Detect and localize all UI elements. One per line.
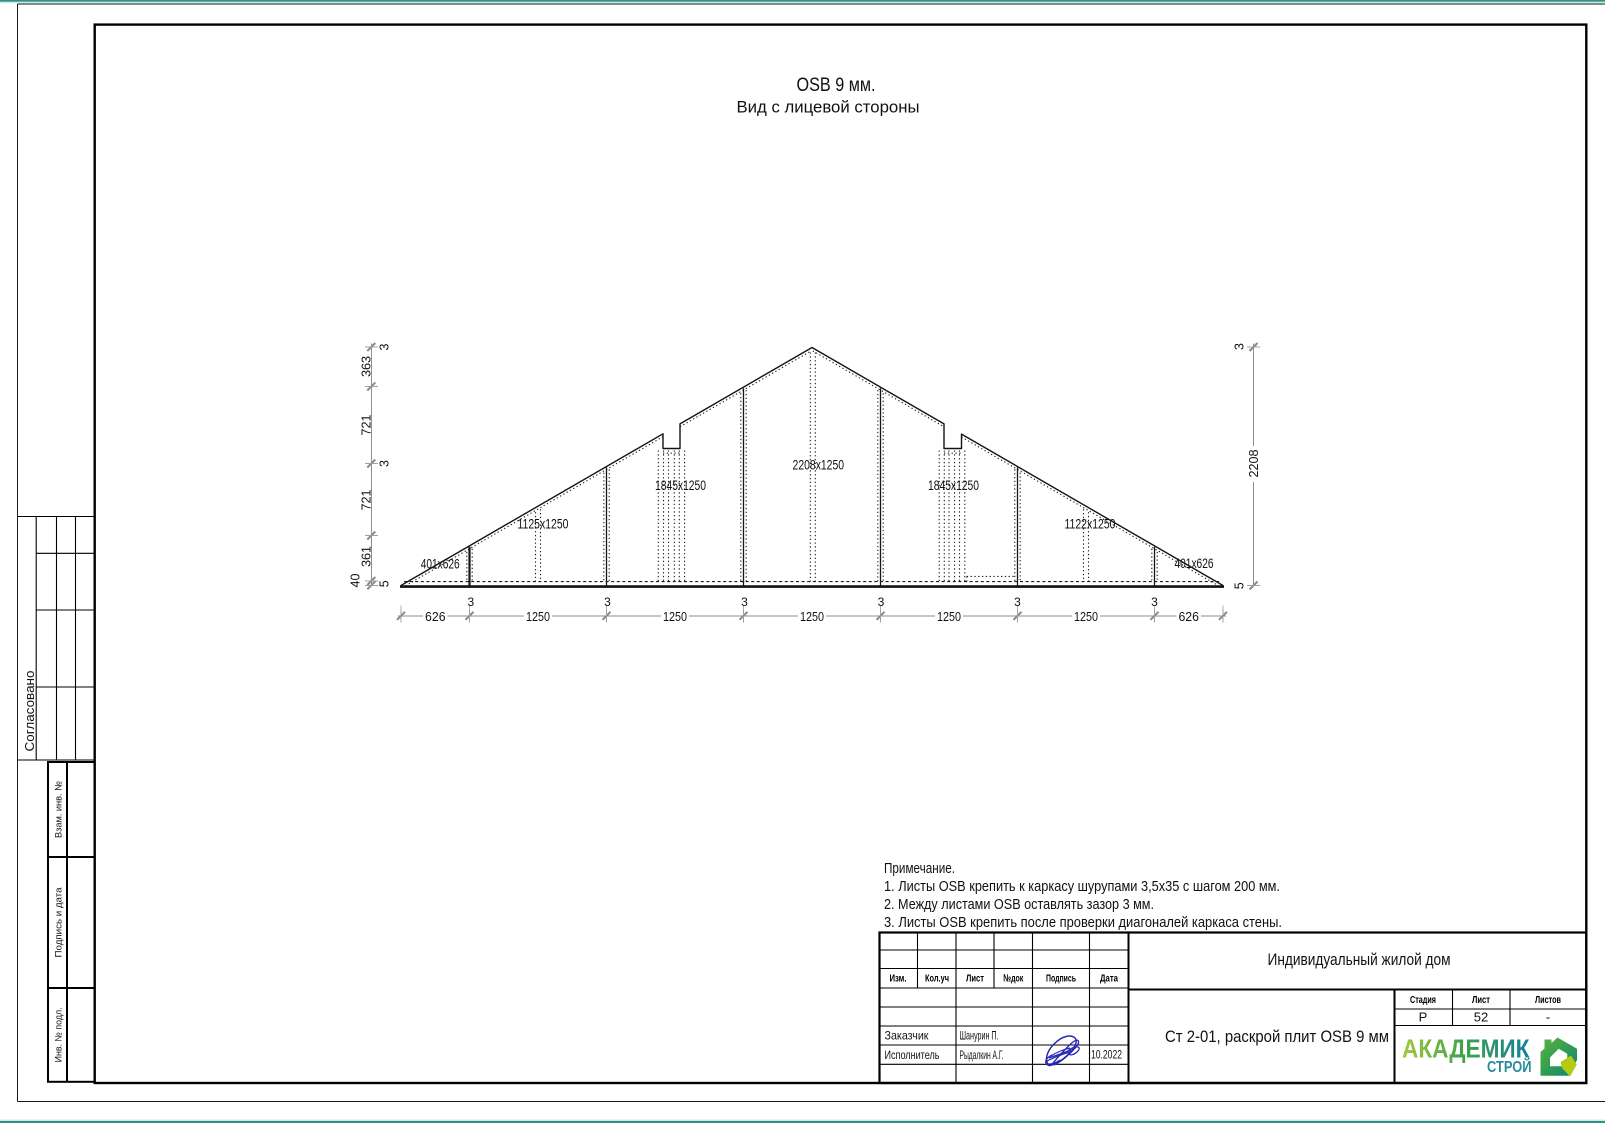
svg-text:Рыдалкин А.Г.: Рыдалкин А.Г. bbox=[960, 1048, 1004, 1062]
svg-text:1845x1250: 1845x1250 bbox=[655, 477, 706, 493]
svg-text:3: 3 bbox=[1233, 343, 1247, 350]
svg-text:1845x1250: 1845x1250 bbox=[928, 477, 979, 493]
svg-text:1125x1250: 1125x1250 bbox=[518, 516, 569, 532]
svg-text:Исполнитель: Исполнитель bbox=[885, 1048, 940, 1062]
svg-text:Листов: Листов bbox=[1535, 994, 1561, 1006]
svg-text:363: 363 bbox=[360, 356, 374, 377]
svg-text:Примечание.: Примечание. bbox=[884, 860, 955, 877]
svg-text:-: - bbox=[1546, 1010, 1550, 1025]
svg-text:626: 626 bbox=[1178, 609, 1199, 624]
svg-text:3: 3 bbox=[1014, 595, 1021, 609]
svg-text:401x626: 401x626 bbox=[421, 556, 460, 572]
svg-text:52: 52 bbox=[1474, 1010, 1488, 1025]
svg-text:Инв. № подл.: Инв. № подл. bbox=[54, 1007, 65, 1062]
svg-text:721: 721 bbox=[360, 489, 374, 510]
svg-text:721: 721 bbox=[360, 414, 374, 435]
svg-text:Дата: Дата bbox=[1100, 973, 1118, 985]
svg-text:3: 3 bbox=[1151, 595, 1158, 609]
svg-text:2208: 2208 bbox=[1246, 450, 1261, 478]
svg-text:401x626: 401x626 bbox=[1175, 555, 1214, 571]
svg-text:3. Листы OSB крепить после про: 3. Листы OSB крепить после проверки диаг… bbox=[884, 914, 1282, 931]
svg-text:1250: 1250 bbox=[937, 609, 961, 624]
svg-text:Р: Р bbox=[1419, 1010, 1428, 1025]
svg-text:5: 5 bbox=[1233, 582, 1247, 589]
svg-text:1250: 1250 bbox=[1074, 609, 1098, 624]
svg-text:Стадия: Стадия bbox=[1410, 994, 1436, 1006]
svg-text:Лист: Лист bbox=[1472, 994, 1490, 1006]
svg-text:3: 3 bbox=[741, 595, 748, 609]
svg-text:3: 3 bbox=[604, 595, 611, 609]
svg-text:Заказчик: Заказчик bbox=[885, 1029, 930, 1043]
svg-text:OSB 9 мм.: OSB 9 мм. bbox=[797, 75, 876, 96]
svg-text:1. Листы OSB крепить к каркасу: 1. Листы OSB крепить к каркасу шурупами … bbox=[884, 878, 1280, 895]
svg-text:СТРОЙ: СТРОЙ bbox=[1487, 1057, 1532, 1076]
svg-text:361: 361 bbox=[360, 546, 374, 567]
svg-text:Взам. инв. №: Взам. инв. № bbox=[54, 781, 65, 838]
svg-text:3: 3 bbox=[378, 343, 392, 350]
svg-text:10.2022: 10.2022 bbox=[1091, 1048, 1122, 1062]
svg-text:2208x1250: 2208x1250 bbox=[793, 457, 845, 473]
svg-text:Шанурин П.: Шанурин П. bbox=[960, 1029, 999, 1043]
svg-text:626: 626 bbox=[425, 609, 446, 624]
svg-text:3: 3 bbox=[878, 595, 885, 609]
svg-text:Согласовано: Согласовано bbox=[23, 670, 37, 751]
svg-text:Изм.: Изм. bbox=[890, 973, 907, 985]
svg-text:Индивидуальный жилой дом: Индивидуальный жилой дом bbox=[1268, 950, 1451, 969]
svg-text:Лист: Лист bbox=[966, 973, 984, 985]
svg-text:1250: 1250 bbox=[526, 609, 550, 624]
svg-text:Вид с лицевой стороны: Вид с лицевой стороны bbox=[737, 98, 920, 117]
svg-text:2. Между листами OSB оставлять: 2. Между листами OSB оставлять зазор 3 м… bbox=[884, 896, 1154, 913]
svg-text:3: 3 bbox=[468, 595, 475, 609]
svg-text:5: 5 bbox=[378, 580, 392, 587]
svg-text:№док: №док bbox=[1003, 973, 1023, 985]
svg-text:Кол.уч: Кол.уч bbox=[925, 973, 949, 985]
svg-text:1122x1250: 1122x1250 bbox=[1065, 516, 1116, 532]
svg-text:Подпись: Подпись bbox=[1046, 973, 1076, 985]
svg-text:1250: 1250 bbox=[663, 609, 687, 624]
svg-text:Подпись и дата: Подпись и дата bbox=[54, 887, 65, 958]
svg-text:40: 40 bbox=[349, 573, 363, 587]
svg-text:1250: 1250 bbox=[800, 609, 824, 624]
svg-text:3: 3 bbox=[378, 460, 392, 467]
svg-text:Ст 2-01, раскрой плит OSB 9 мм: Ст 2-01, раскрой плит OSB 9 мм bbox=[1165, 1027, 1389, 1046]
